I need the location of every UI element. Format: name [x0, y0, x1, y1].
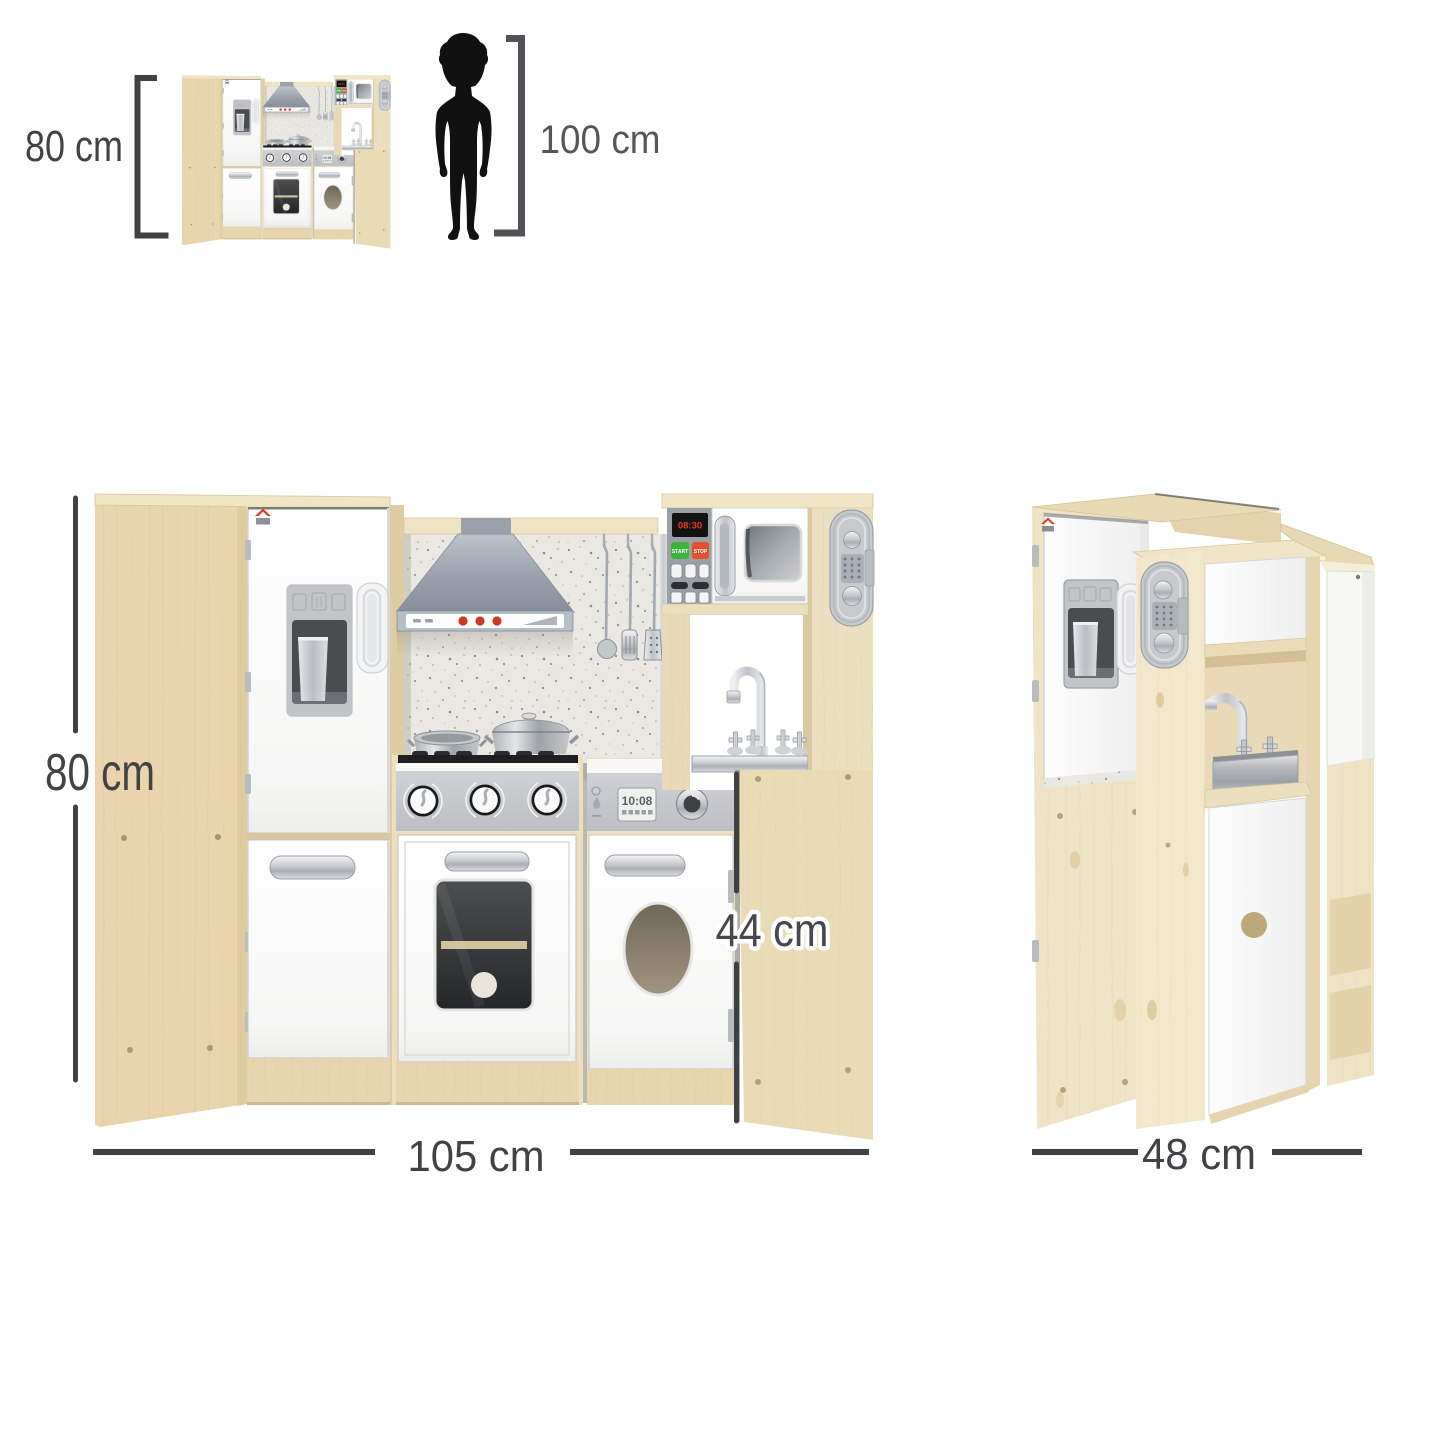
svg-text:44 cm: 44 cm — [716, 904, 829, 956]
svg-text:100 cm: 100 cm — [540, 118, 661, 162]
svg-text:48 cm: 48 cm — [1142, 1130, 1256, 1179]
svg-text:80 cm: 80 cm — [25, 122, 123, 171]
svg-text:80 cm: 80 cm — [45, 744, 155, 802]
svg-text:105 cm: 105 cm — [408, 1132, 545, 1181]
